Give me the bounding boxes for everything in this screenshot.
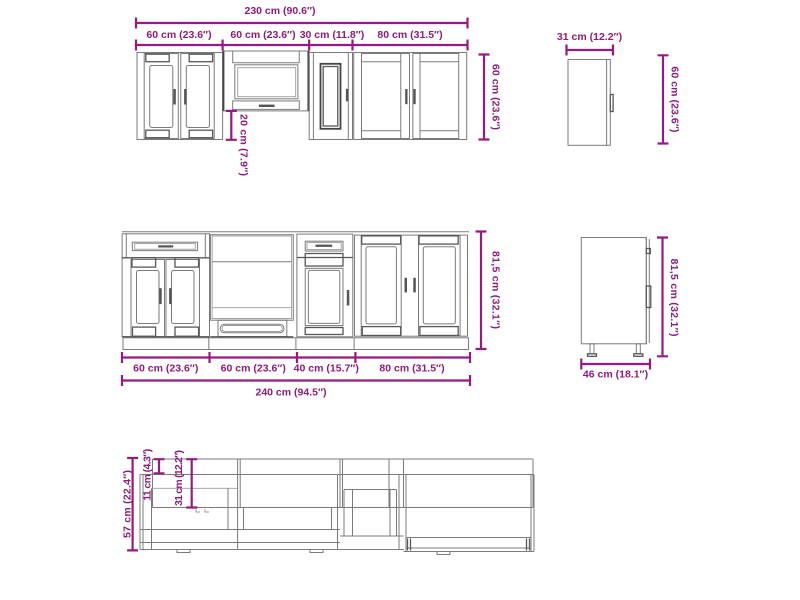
svg-text:81,5 cm (32.1″): 81,5 cm (32.1″): [668, 259, 680, 337]
svg-text:46 cm (18.1″): 46 cm (18.1″): [583, 369, 648, 381]
svg-text:60 cm (23.6″): 60 cm (23.6″): [230, 29, 295, 41]
svg-text:60 cm (23.6″): 60 cm (23.6″): [221, 363, 286, 375]
svg-text:60 cm (23.6″): 60 cm (23.6″): [669, 66, 681, 132]
svg-text:230 cm (90.6″): 230 cm (90.6″): [245, 5, 316, 17]
svg-text:80 cm (31.5″): 80 cm (31.5″): [379, 363, 444, 375]
svg-text:11 cm (4.3″): 11 cm (4.3″): [142, 449, 154, 501]
svg-text:80 cm (31.5″): 80 cm (31.5″): [377, 29, 442, 41]
svg-text:81,5 cm (32.1″): 81,5 cm (32.1″): [490, 251, 502, 329]
svg-text:60 cm (23.6″): 60 cm (23.6″): [490, 64, 502, 130]
svg-text:60 cm (23.6″): 60 cm (23.6″): [146, 29, 211, 41]
svg-text:31 cm (12.2″): 31 cm (12.2″): [173, 450, 185, 506]
svg-text:31 cm (12.2″): 31 cm (12.2″): [557, 31, 622, 43]
svg-text:40 cm (15.7″): 40 cm (15.7″): [294, 363, 359, 375]
svg-text:57 cm (22.4″): 57 cm (22.4″): [122, 470, 134, 538]
svg-text:20 cm (7.9″): 20 cm (7.9″): [238, 114, 250, 176]
svg-text:30 cm (11.8″): 30 cm (11.8″): [300, 29, 365, 41]
svg-text:240 cm (94.5″): 240 cm (94.5″): [256, 387, 327, 399]
svg-text:60 cm (23.6″): 60 cm (23.6″): [133, 363, 198, 375]
